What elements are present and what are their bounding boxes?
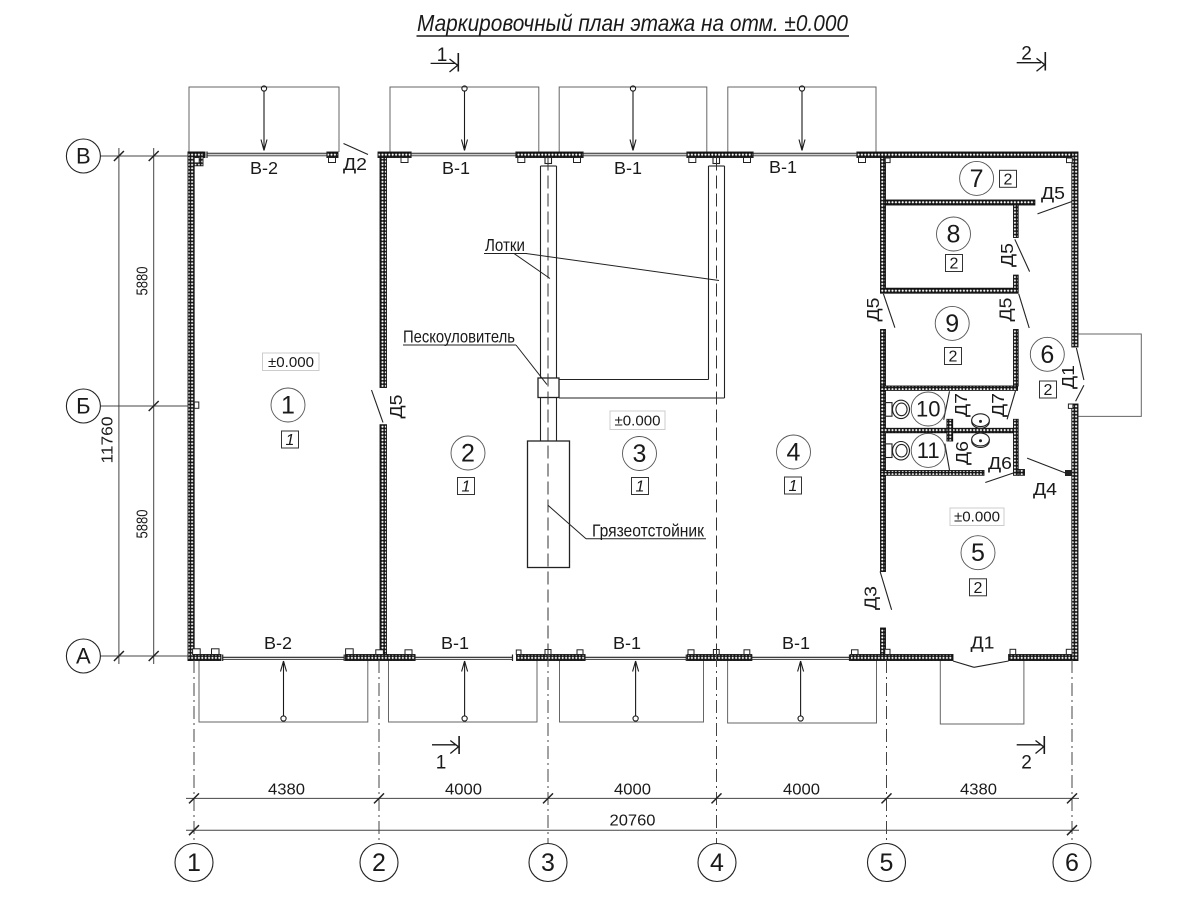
svg-text:2: 2 bbox=[1021, 44, 1032, 65]
svg-text:В-1: В-1 bbox=[614, 158, 642, 178]
svg-text:Маркировочный план этажа на от: Маркировочный план этажа на отм. ±0.000 bbox=[417, 10, 848, 36]
svg-text:4: 4 bbox=[710, 849, 724, 877]
svg-text:11760: 11760 bbox=[100, 416, 117, 463]
svg-text:1: 1 bbox=[636, 479, 645, 496]
svg-text:Д2: Д2 bbox=[343, 154, 367, 174]
svg-text:В-1: В-1 bbox=[769, 157, 797, 177]
svg-text:1: 1 bbox=[789, 478, 798, 495]
svg-text:10: 10 bbox=[916, 397, 940, 422]
svg-text:4380: 4380 bbox=[268, 782, 305, 799]
svg-text:5880: 5880 bbox=[135, 509, 152, 538]
svg-text:Д7: Д7 bbox=[951, 393, 971, 417]
svg-text:2: 2 bbox=[1044, 382, 1053, 399]
svg-text:11: 11 bbox=[917, 438, 940, 463]
svg-text:Грязеотстойник: Грязеотстойник bbox=[592, 520, 704, 540]
svg-text:Д1: Д1 bbox=[971, 633, 995, 653]
svg-text:Пескоуловитель: Пескоуловитель bbox=[403, 327, 515, 347]
svg-text:2: 2 bbox=[372, 849, 386, 877]
svg-text:4000: 4000 bbox=[445, 782, 482, 799]
svg-text:Д5: Д5 bbox=[1041, 183, 1065, 203]
svg-text:Лотки: Лотки bbox=[485, 235, 525, 255]
svg-text:В-1: В-1 bbox=[442, 158, 470, 178]
svg-text:2: 2 bbox=[1004, 171, 1013, 188]
svg-text:±0.000: ±0.000 bbox=[615, 413, 661, 430]
svg-text:2: 2 bbox=[1021, 753, 1032, 774]
svg-text:В-2: В-2 bbox=[250, 158, 278, 178]
svg-text:В: В bbox=[76, 144, 91, 169]
svg-text:±0.000: ±0.000 bbox=[954, 509, 1000, 526]
svg-text:2: 2 bbox=[461, 440, 475, 468]
svg-text:5: 5 bbox=[971, 539, 985, 567]
svg-text:1: 1 bbox=[436, 753, 447, 774]
svg-text:8: 8 bbox=[947, 221, 961, 249]
svg-text:2: 2 bbox=[950, 256, 959, 273]
svg-text:Д3: Д3 bbox=[861, 586, 881, 610]
svg-text:6: 6 bbox=[1065, 849, 1079, 877]
svg-text:9: 9 bbox=[945, 310, 959, 338]
svg-text:2: 2 bbox=[974, 580, 983, 597]
svg-text:Д5: Д5 bbox=[863, 298, 883, 322]
svg-text:Д5: Д5 bbox=[386, 395, 406, 419]
svg-text:1: 1 bbox=[437, 45, 448, 66]
svg-text:7: 7 bbox=[970, 165, 984, 193]
svg-text:6: 6 bbox=[1040, 341, 1054, 369]
svg-text:1: 1 bbox=[462, 479, 471, 496]
svg-text:1: 1 bbox=[281, 392, 295, 420]
svg-text:3: 3 bbox=[541, 849, 555, 877]
svg-text:±0.000: ±0.000 bbox=[268, 354, 314, 371]
svg-text:Д5: Д5 bbox=[997, 243, 1017, 267]
svg-text:3: 3 bbox=[633, 440, 647, 468]
svg-text:Д4: Д4 bbox=[1033, 479, 1057, 499]
svg-text:4000: 4000 bbox=[783, 782, 820, 799]
svg-text:4380: 4380 bbox=[960, 782, 997, 799]
svg-text:В-1: В-1 bbox=[782, 633, 810, 653]
svg-text:А: А bbox=[76, 644, 91, 669]
svg-text:5: 5 bbox=[880, 849, 894, 877]
svg-text:В-1: В-1 bbox=[613, 633, 641, 653]
svg-text:В-1: В-1 bbox=[441, 633, 469, 653]
svg-text:Д6: Д6 bbox=[952, 441, 972, 465]
svg-text:Б: Б bbox=[76, 394, 90, 419]
svg-text:20760: 20760 bbox=[610, 813, 656, 830]
svg-text:Д6: Д6 bbox=[988, 453, 1012, 473]
svg-text:1: 1 bbox=[187, 849, 201, 877]
svg-text:1: 1 bbox=[286, 432, 295, 449]
svg-text:2: 2 bbox=[949, 349, 958, 366]
svg-text:Д7: Д7 bbox=[988, 393, 1008, 417]
svg-text:4000: 4000 bbox=[614, 782, 651, 799]
svg-text:4: 4 bbox=[787, 439, 801, 467]
svg-text:Д1: Д1 bbox=[1058, 365, 1078, 389]
svg-text:5880: 5880 bbox=[135, 266, 152, 295]
svg-text:В-2: В-2 bbox=[264, 633, 292, 653]
svg-text:Д5: Д5 bbox=[996, 298, 1016, 322]
